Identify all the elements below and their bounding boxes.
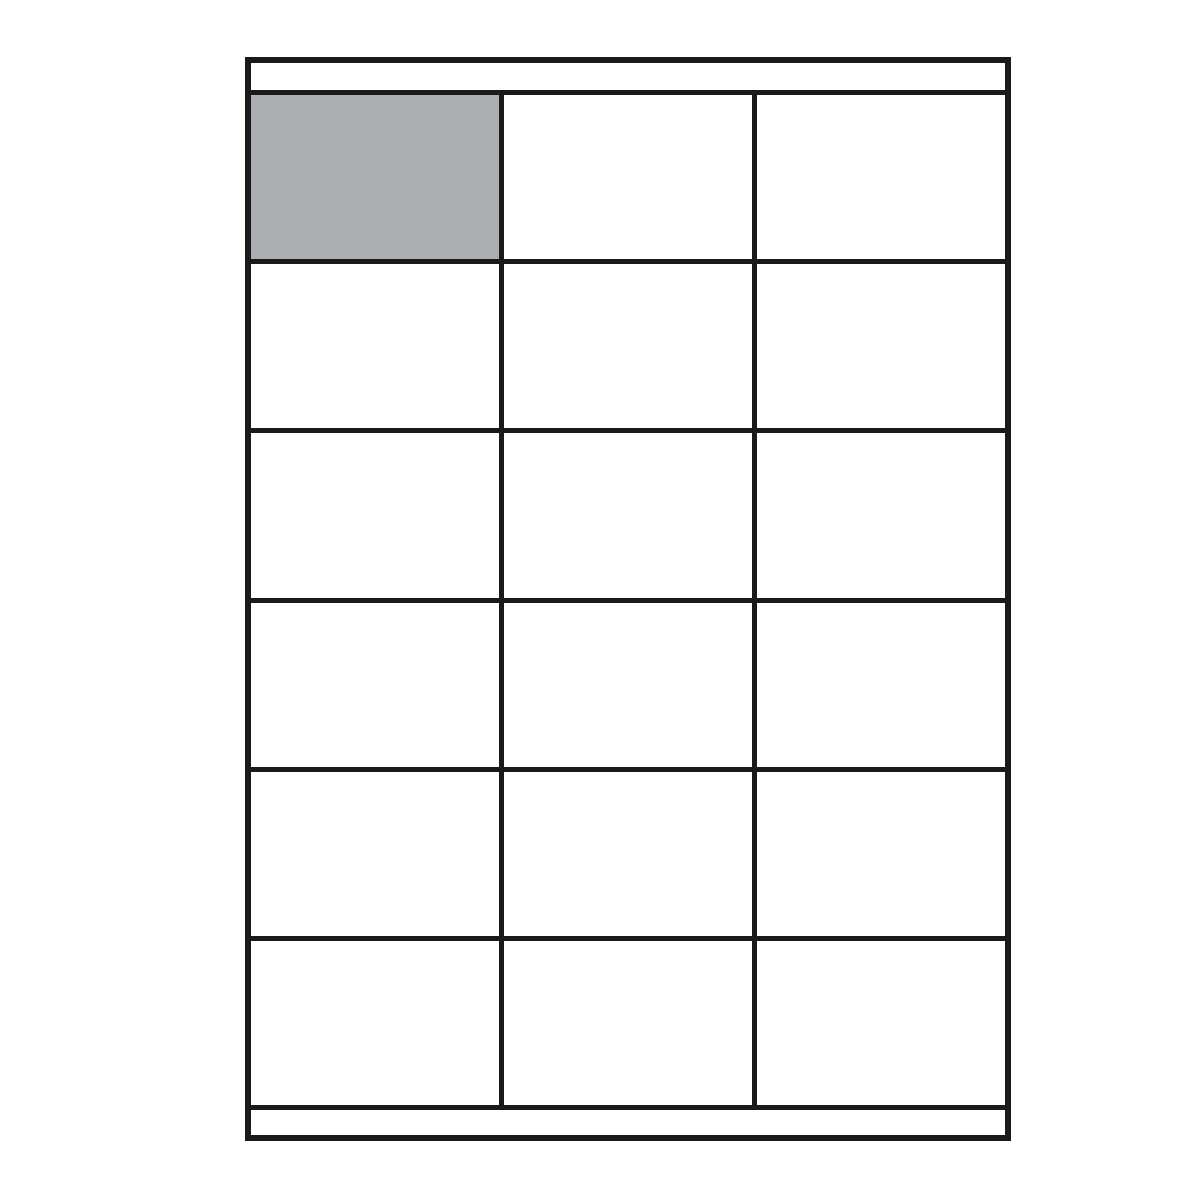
label-cell: [504, 603, 752, 767]
label-cell: [757, 941, 1005, 1105]
label-cell: [504, 433, 752, 597]
label-cell: [757, 603, 1005, 767]
label-cell: [504, 772, 752, 936]
page-canvas: [0, 0, 1200, 1200]
label-grid: [251, 95, 1005, 1105]
label-sheet: [245, 57, 1011, 1141]
label-cell: [251, 433, 499, 597]
label-cell: [757, 433, 1005, 597]
label-cell: [757, 772, 1005, 936]
label-cell: [757, 264, 1005, 428]
sheet-top-margin: [251, 63, 1005, 95]
sheet-bottom-margin: [251, 1105, 1005, 1135]
label-cell: [251, 603, 499, 767]
label-cell-highlighted: [251, 95, 499, 259]
label-cell: [757, 95, 1005, 259]
label-cell: [504, 95, 752, 259]
label-cell: [251, 772, 499, 936]
label-cell: [251, 941, 499, 1105]
label-cell: [504, 264, 752, 428]
label-cell: [251, 264, 499, 428]
label-cell: [504, 941, 752, 1105]
